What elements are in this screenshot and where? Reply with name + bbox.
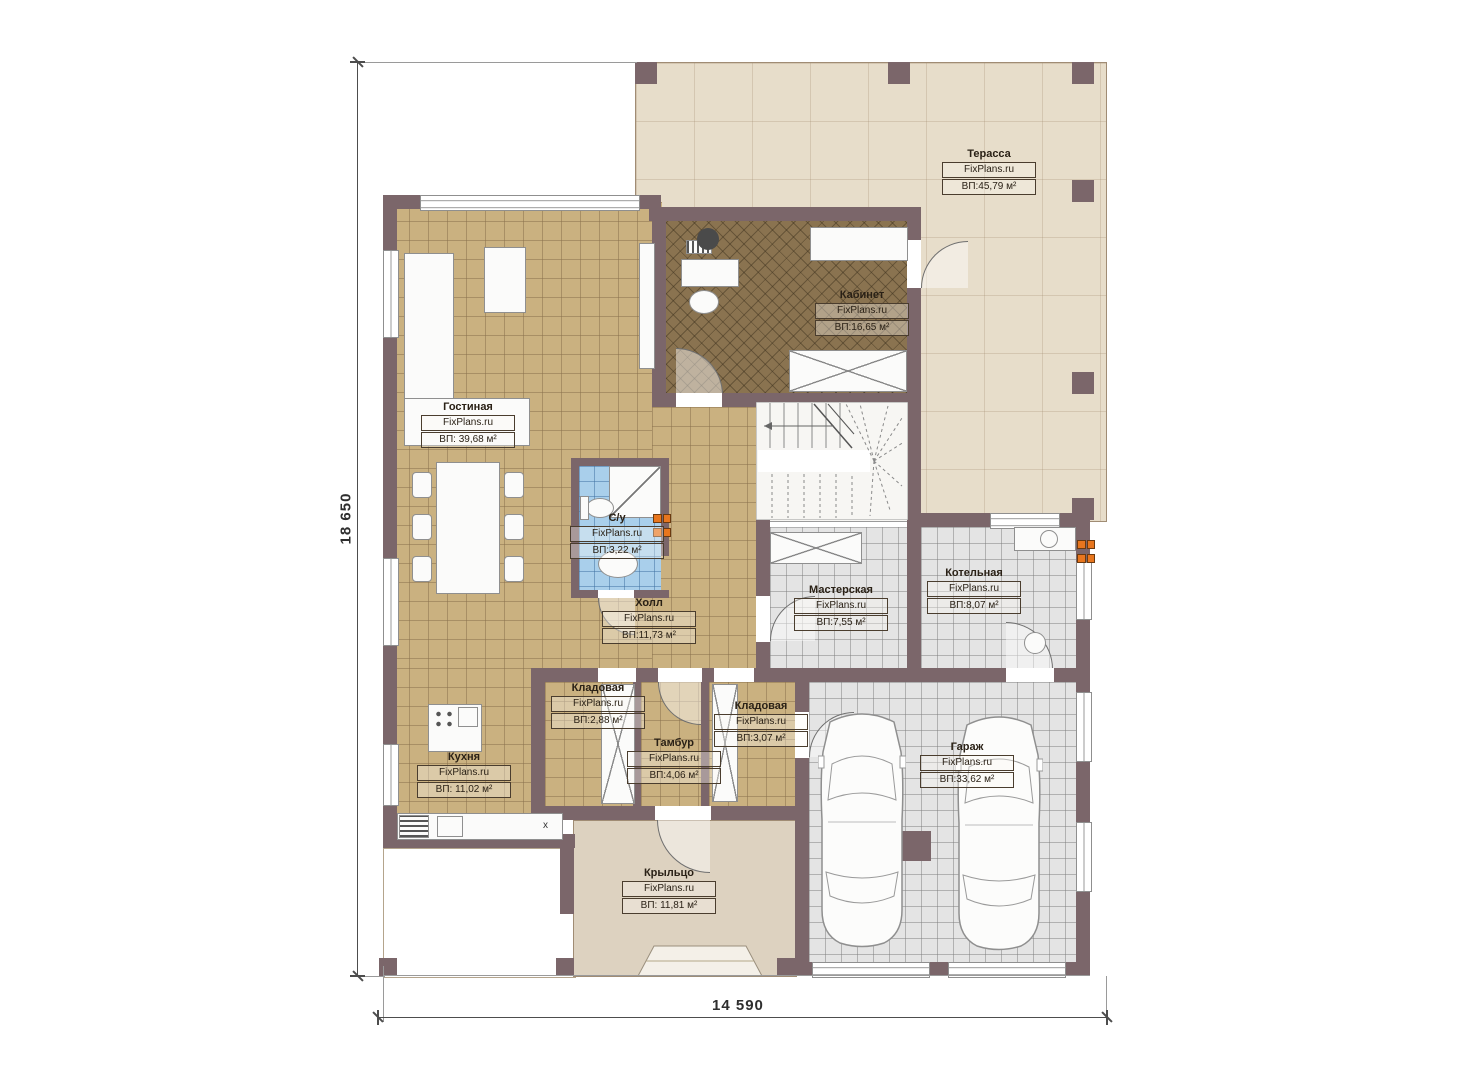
dimension-line-horizontal xyxy=(378,1017,1107,1018)
room-area: ВП:45,79 м² xyxy=(942,179,1036,195)
room-label-storage-2: Кладовая FixPlans.ru ВП:3,07 м² xyxy=(714,700,808,747)
dining-table xyxy=(436,462,500,594)
window xyxy=(420,195,640,211)
site-label: FixPlans.ru xyxy=(570,526,664,542)
room-area: ВП: 11,81 м² xyxy=(622,898,716,914)
car xyxy=(818,700,906,952)
door-opening xyxy=(756,596,770,642)
room-label-garage: Гараж FixPlans.ru ВП:33,62 м² xyxy=(920,741,1014,788)
room-area: ВП:4,06 м² xyxy=(627,768,721,784)
room-label-porch: Крыльцо FixPlans.ru ВП: 11,81 м² xyxy=(622,867,716,914)
door-opening xyxy=(676,393,722,407)
site-label: FixPlans.ru xyxy=(920,755,1014,771)
site-label: FixPlans.ru xyxy=(551,696,645,712)
room-area: ВП:11,73 м² xyxy=(602,628,696,644)
chair xyxy=(504,472,524,498)
extension-line xyxy=(383,966,384,1022)
porch-post xyxy=(556,958,574,976)
terrace-post xyxy=(888,62,910,84)
room-name: Холл xyxy=(602,597,696,610)
site-label: FixPlans.ru xyxy=(602,611,696,627)
office-sofa xyxy=(810,227,908,261)
chair xyxy=(412,472,432,498)
room-label-kitchen: Кухня FixPlans.ru ВП: 11,02 м² xyxy=(417,751,511,798)
porch-steps xyxy=(636,944,764,978)
room-label-office: Кабинет FixPlans.ru ВП:16,65 м² xyxy=(815,289,909,336)
window xyxy=(1076,562,1092,620)
chair xyxy=(504,514,524,540)
room-area: ВП:3,07 м² xyxy=(714,731,808,747)
wall xyxy=(571,458,669,466)
site-label: FixPlans.ru xyxy=(627,751,721,767)
tv-stand xyxy=(639,243,655,369)
door-opening xyxy=(598,668,636,682)
terrace-post xyxy=(1072,180,1094,202)
door-opening xyxy=(1006,668,1054,682)
room-label-storage-1: Кладовая FixPlans.ru ВП:2,88 м² xyxy=(551,682,645,729)
desk xyxy=(681,259,739,287)
room-name: Кухня xyxy=(417,751,511,764)
staircase xyxy=(756,402,908,520)
site-label: FixPlans.ru xyxy=(622,881,716,897)
room-name: Мастерская xyxy=(794,584,888,597)
boiler-unit xyxy=(1024,632,1046,654)
door-opening xyxy=(907,240,921,288)
patio-outline xyxy=(383,848,576,978)
site-label: FixPlans.ru xyxy=(421,415,515,431)
room-area: ВП:2,88 м² xyxy=(551,713,645,729)
oven xyxy=(399,815,429,838)
shower xyxy=(609,466,661,518)
terrace-post xyxy=(635,62,657,84)
room-name: Гостиная xyxy=(421,401,515,414)
room-name: Котельная xyxy=(927,567,1021,580)
room-area: ВП:7,55 м² xyxy=(794,615,888,631)
window xyxy=(383,558,399,646)
room-name: Тамбур xyxy=(627,737,721,750)
site-label: FixPlans.ru xyxy=(714,714,808,730)
porch-post xyxy=(777,958,795,976)
window xyxy=(1076,822,1092,892)
kitchen-x-mark: x xyxy=(543,820,548,831)
room-label-workshop: Мастерская FixPlans.ru ВП:7,55 м² xyxy=(794,584,888,631)
site-label: FixPlans.ru xyxy=(815,303,909,319)
room-area: ВП:16,65 м² xyxy=(815,320,909,336)
room-area: ВП:3,22 м² xyxy=(570,543,664,559)
site-label: FixPlans.ru xyxy=(794,598,888,614)
terrace-post xyxy=(1072,498,1094,520)
ground-line xyxy=(383,975,1090,976)
room-area: ВП: 39,68 м² xyxy=(421,432,515,448)
room-label-hall: Холл FixPlans.ru ВП:11,73 м² xyxy=(602,597,696,644)
desk-chair xyxy=(689,290,719,314)
boiler-sink xyxy=(1040,530,1058,548)
door-opening xyxy=(714,668,754,682)
coffee-table xyxy=(484,247,526,313)
room-name: Крыльцо xyxy=(622,867,716,880)
chair xyxy=(412,556,432,582)
window xyxy=(383,250,399,338)
outlet-marker xyxy=(1077,554,1095,563)
window xyxy=(383,744,399,806)
extension-line xyxy=(357,62,637,63)
chair xyxy=(412,514,432,540)
room-label-boiler-room: Котельная FixPlans.ru ВП:8,07 м² xyxy=(927,567,1021,614)
kitchen-sink xyxy=(437,816,463,837)
outlet-marker xyxy=(1077,540,1095,549)
room-name: Кладовая xyxy=(551,682,645,695)
dimension-line-vertical xyxy=(357,62,358,977)
dimension-value-horizontal: 14 590 xyxy=(712,997,764,1014)
site-label: FixPlans.ru xyxy=(927,581,1021,597)
terrace-post xyxy=(1072,372,1094,394)
cabinet xyxy=(770,532,862,564)
door-opening xyxy=(658,668,702,682)
window xyxy=(1076,692,1092,762)
room-label-vestibule: Тамбур FixPlans.ru ВП:4,06 м² xyxy=(627,737,721,784)
wall xyxy=(560,834,574,914)
island-sink xyxy=(458,707,478,727)
room-name: Гараж xyxy=(920,741,1014,754)
room-name: Кладовая xyxy=(714,700,808,713)
room-label-living-room: Гостиная FixPlans.ru ВП: 39,68 м² xyxy=(421,401,515,448)
porch-post xyxy=(379,958,397,976)
room-area: ВП:8,07 м² xyxy=(927,598,1021,614)
site-label: FixPlans.ru xyxy=(942,162,1036,178)
room-name: Терасса xyxy=(942,148,1036,161)
wall xyxy=(907,400,921,680)
wall xyxy=(907,207,921,417)
terrace-post xyxy=(1072,62,1094,84)
room-name: Кабинет xyxy=(815,289,909,302)
dimension-value-vertical: 18 650 xyxy=(337,493,354,545)
stove-burners xyxy=(431,707,455,727)
wall xyxy=(649,207,921,221)
room-area: ВП: 11,02 м² xyxy=(417,782,511,798)
room-label-terrace: Терасса FixPlans.ru ВП:45,79 м² xyxy=(942,148,1036,195)
plant xyxy=(697,228,719,250)
room-label-bathroom: С/у FixPlans.ru ВП:3,22 м² xyxy=(570,512,664,559)
cabinet xyxy=(789,350,907,392)
floor-plan: x xyxy=(0,0,1474,1080)
room-area: ВП:33,62 м² xyxy=(920,772,1014,788)
room-name: С/у xyxy=(570,512,664,525)
site-label: FixPlans.ru xyxy=(417,765,511,781)
door-opening xyxy=(655,806,711,820)
chair xyxy=(504,556,524,582)
